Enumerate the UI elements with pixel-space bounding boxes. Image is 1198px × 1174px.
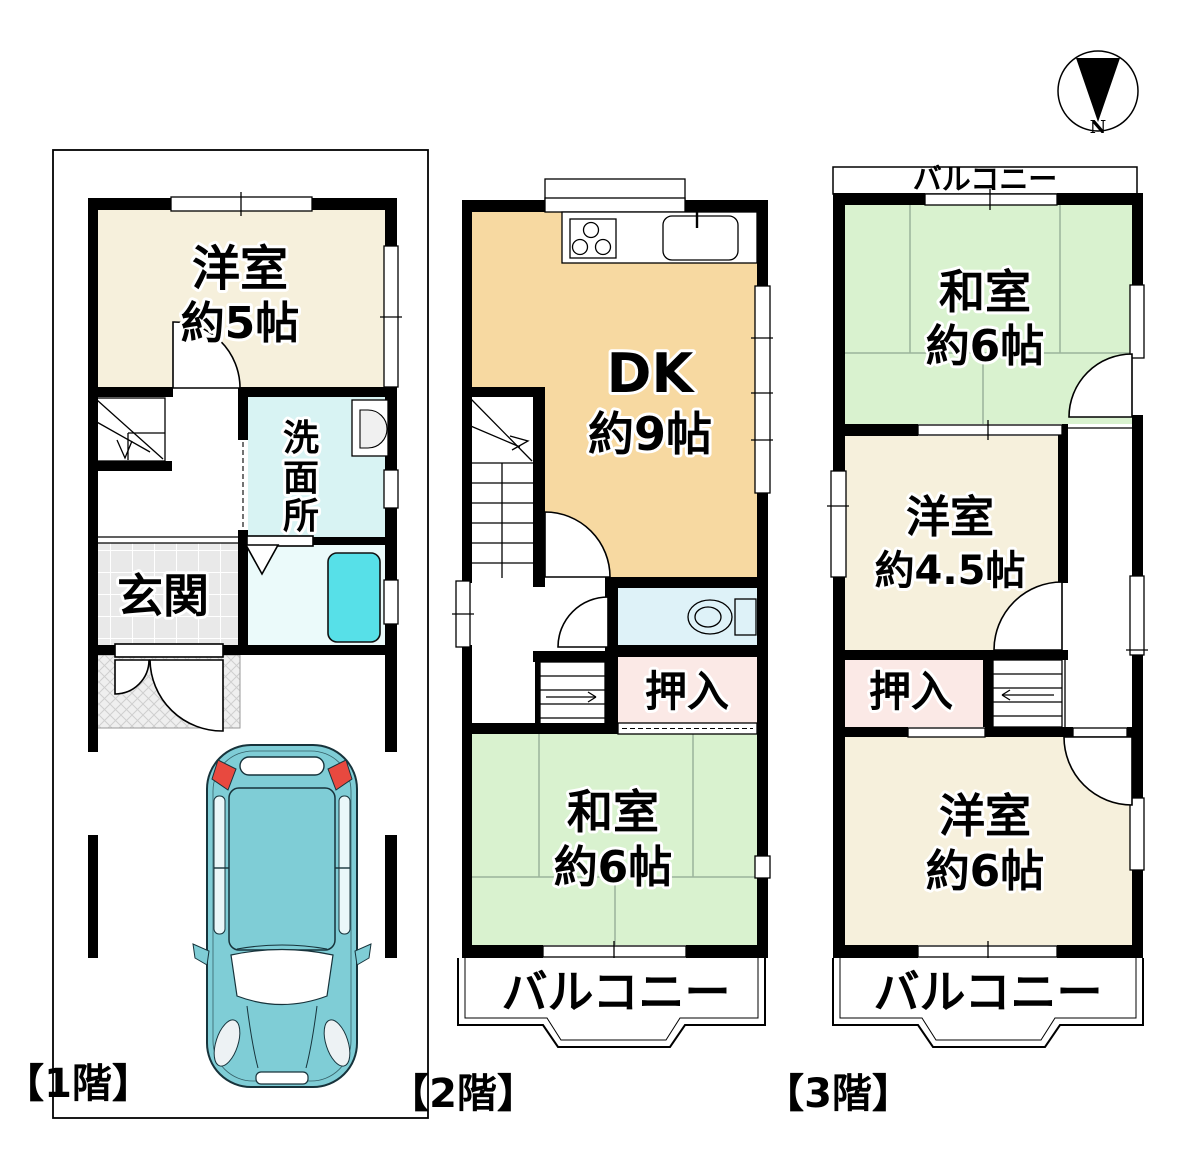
compass-north-label: N <box>1090 117 1106 138</box>
closet-sliding-door <box>618 723 757 734</box>
kitchen-counter <box>562 209 757 263</box>
closet-label: 押入 <box>869 667 953 716</box>
room-size-label: 約9帖 <box>588 407 712 461</box>
room-label: 和室 <box>939 265 1031 319</box>
washroom-char: 洗 <box>283 418 319 459</box>
entrance-label: 玄関 <box>117 569 209 623</box>
car-rear-window <box>240 757 324 775</box>
compass: N <box>1058 51 1138 138</box>
room-size-label: 約4.5帖 <box>875 548 1026 594</box>
balcony-label: バルコニー <box>501 965 730 1019</box>
room-label: 洋室 <box>939 789 1031 843</box>
floor-2-stairs-down <box>540 662 605 731</box>
floorplan-page: N <box>0 0 1198 1174</box>
balcony-label: バルコニー <box>873 965 1102 1019</box>
car-grille <box>256 1072 308 1084</box>
room-size-label: 約6帖 <box>926 846 1045 897</box>
door-swing <box>558 597 608 647</box>
room-label: DK <box>607 342 696 405</box>
washroom-char: 面 <box>283 458 319 499</box>
room-size-label: 約6帖 <box>554 842 673 893</box>
car-windshield <box>231 950 333 1005</box>
balcony-label: バルコニー <box>913 162 1057 196</box>
floor-2-plan: DK 約9帖 押入 和室 約6帖 バルコニー 【2階】 <box>389 179 773 1117</box>
room-size-label: 約6帖 <box>926 321 1045 372</box>
sink-icon <box>352 400 388 456</box>
floor-3-stairs <box>993 660 1065 727</box>
washroom-char: 所 <box>283 496 319 537</box>
floorplan-canvas: N <box>0 0 1198 1174</box>
floor-2-stairs-up <box>466 398 533 578</box>
closet-label: 押入 <box>645 667 729 716</box>
floor-3-plan: バルコニー 和室 約6帖 洋室 約4.5帖 押入 洋室 約6帖 バルコニー 【3… <box>764 162 1148 1117</box>
car <box>193 745 371 1087</box>
floor-2-label: 【2階】 <box>389 1071 537 1117</box>
floor-3-label: 【3階】 <box>764 1071 912 1117</box>
room-label: 洋室 <box>906 492 994 543</box>
bathtub-icon <box>328 553 380 642</box>
room-label: 洋室 <box>192 241 288 297</box>
room-label: 和室 <box>567 785 659 839</box>
floor-1-plan: 洋室 約5帖 洗 面 所 玄関 【1階】 <box>4 150 428 1118</box>
room-size-label: 約5帖 <box>181 298 300 349</box>
car-roof <box>229 788 335 950</box>
floor-1-label: 【1階】 <box>4 1061 152 1107</box>
